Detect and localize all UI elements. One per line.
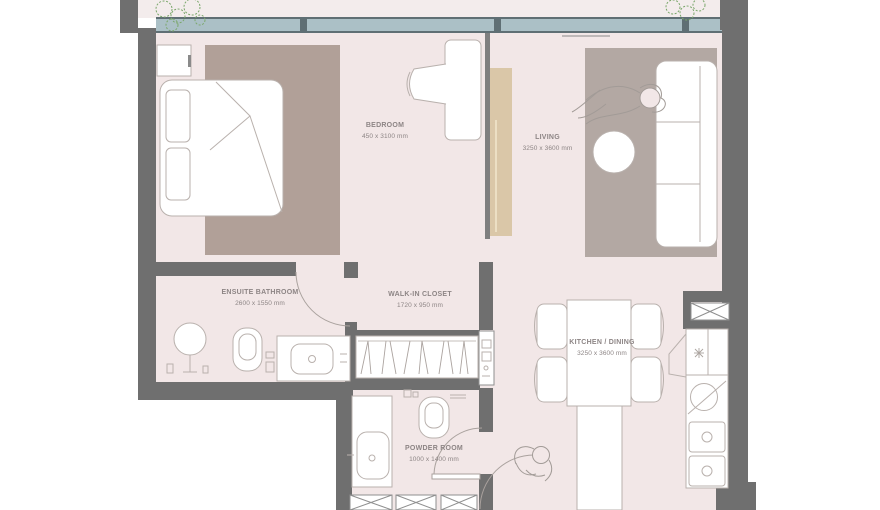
room-dims: 3250 x 3600 mm	[550, 349, 654, 359]
toiletry	[266, 352, 274, 358]
furniture-overlay	[0, 0, 880, 510]
dresser-handle	[188, 55, 191, 67]
floor-plan: BEDROOM 450 x 3100 mm LIVING 3250 x 3600…	[0, 0, 880, 510]
room-name: ENSUITE BATHROOM	[210, 288, 310, 299]
room-dims: 450 x 3100 mm	[340, 132, 430, 142]
fitting	[413, 392, 418, 397]
room-label-closet: WALK-IN CLOSET 1720 x 950 mm	[370, 290, 470, 311]
desk-chair	[410, 64, 447, 104]
entry-door-arc	[480, 455, 534, 509]
fixture-star	[694, 348, 704, 358]
kitchen-furniture	[480, 300, 729, 510]
dining-chair	[537, 357, 567, 402]
partition-wall	[485, 33, 490, 239]
room-name: LIVING	[505, 133, 590, 144]
utility-panel	[479, 331, 494, 385]
room-dims: 1720 x 950 mm	[370, 301, 470, 311]
dresser	[157, 45, 191, 76]
kitchen-counter	[686, 329, 728, 488]
round-table	[593, 131, 635, 173]
door-leaf	[432, 474, 480, 479]
room-label-ensuite: ENSUITE BATHROOM 2600 x 1550 mm	[210, 288, 310, 309]
plant-icon	[666, 0, 705, 20]
toiletry	[266, 362, 274, 372]
room-name: KITCHEN / DINING	[550, 338, 654, 349]
shower-basin	[174, 323, 206, 355]
room-label-bedroom: BEDROOM 450 x 3100 mm	[340, 121, 430, 142]
room-dims: 1000 x 1400 mm	[384, 455, 484, 465]
toiletry	[203, 366, 208, 373]
desk	[445, 40, 481, 140]
open-cabinet-door	[669, 334, 686, 377]
bedroom-furniture	[157, 40, 481, 255]
fitting	[404, 390, 411, 397]
person-icon	[515, 447, 552, 482]
room-label-powder: POWDER ROOM 1000 x 1400 mm	[384, 444, 484, 465]
room-name: POWDER ROOM	[384, 444, 484, 455]
closet-fixtures	[356, 331, 494, 385]
room-label-kitchen: KITCHEN / DINING 3250 x 3600 mm	[550, 338, 654, 359]
plant-icon	[156, 0, 205, 31]
kitchen-island	[577, 406, 622, 510]
sofa	[656, 61, 717, 247]
wardrobe	[356, 336, 478, 378]
room-name: WALK-IN CLOSET	[370, 290, 470, 301]
room-dims: 3250 x 3600 mm	[505, 144, 590, 154]
toiletry	[167, 364, 173, 373]
room-dims: 2600 x 1550 mm	[210, 299, 310, 309]
room-label-living: LIVING 3250 x 3600 mm	[505, 133, 590, 154]
dining-chair	[631, 357, 661, 402]
room-name: BEDROOM	[340, 121, 430, 132]
